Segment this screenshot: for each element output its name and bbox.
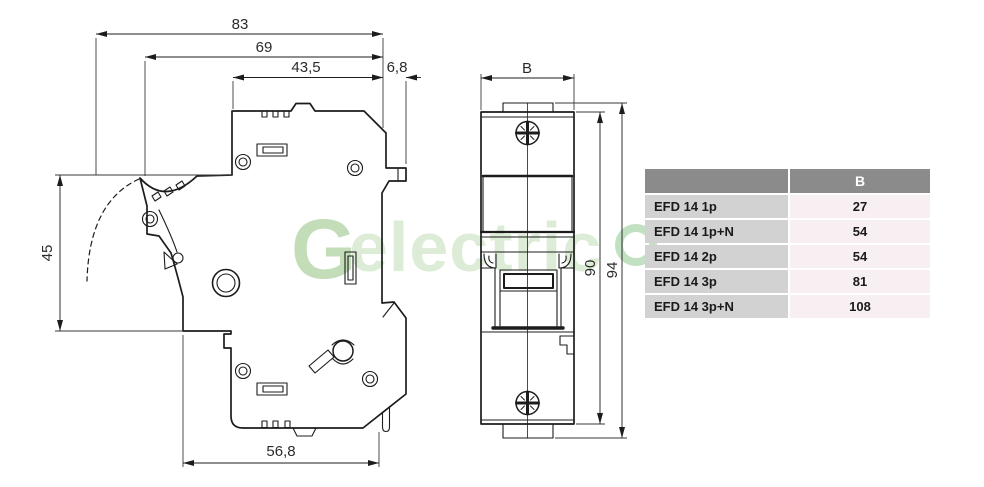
side-view (87, 104, 406, 437)
table-row-model: EFD 14 1p (645, 195, 788, 218)
dim-label-43-5: 43,5 (291, 59, 320, 76)
top-notches (262, 111, 289, 117)
bottom-notches (262, 421, 290, 428)
table-row-value: 27 (790, 195, 930, 218)
lever-pivot-pin (173, 253, 183, 263)
terminal-slot-top (257, 144, 287, 156)
phillips-screw-top (516, 122, 539, 145)
dim-label-45: 45 (39, 245, 56, 262)
table-row-model: EFD 14 3p (645, 270, 788, 293)
front-side-step (560, 336, 574, 354)
table-header-model (645, 169, 788, 193)
table-row-model: EFD 14 1p+N (645, 220, 788, 243)
table-row-model: EFD 14 2p (645, 245, 788, 268)
dim-label-94: 94 (604, 262, 621, 279)
table-row-value: 81 (790, 270, 930, 293)
center-screw (213, 270, 240, 297)
dim-label-90: 90 (582, 260, 599, 277)
terminal-slot-right (345, 252, 356, 284)
bottom-bump (293, 428, 316, 436)
dim-label-6-8: 6,8 (387, 59, 408, 76)
front-view (481, 103, 574, 438)
phillips-screw-bottom (516, 392, 539, 415)
lever-screw (143, 212, 158, 227)
table-row-value: 54 (790, 245, 930, 268)
table-row-value: 54 (790, 220, 930, 243)
table-row-model: EFD 14 3p+N (645, 295, 788, 318)
technical-drawing-page: G electric (0, 0, 984, 487)
din-clip-notch (383, 303, 394, 317)
toggle-lever (309, 340, 354, 373)
dim-label-B: B (522, 60, 532, 77)
dim-label-56-8: 56,8 (266, 443, 295, 460)
table-header-b: B (790, 169, 930, 193)
lever-jaw-line (159, 210, 177, 252)
front-bottom-tab (503, 424, 553, 438)
table-row-value: 108 (790, 295, 930, 318)
dimension-table: B EFD 14 1p 27 EFD 14 1p+N 54 EFD 14 2p … (645, 169, 930, 318)
front-top-tab (503, 103, 553, 112)
terminal-slot-bottom (257, 383, 287, 395)
lever-swing-arc (87, 179, 139, 281)
dim-label-83: 83 (232, 16, 249, 33)
dim-label-69: 69 (256, 39, 273, 56)
